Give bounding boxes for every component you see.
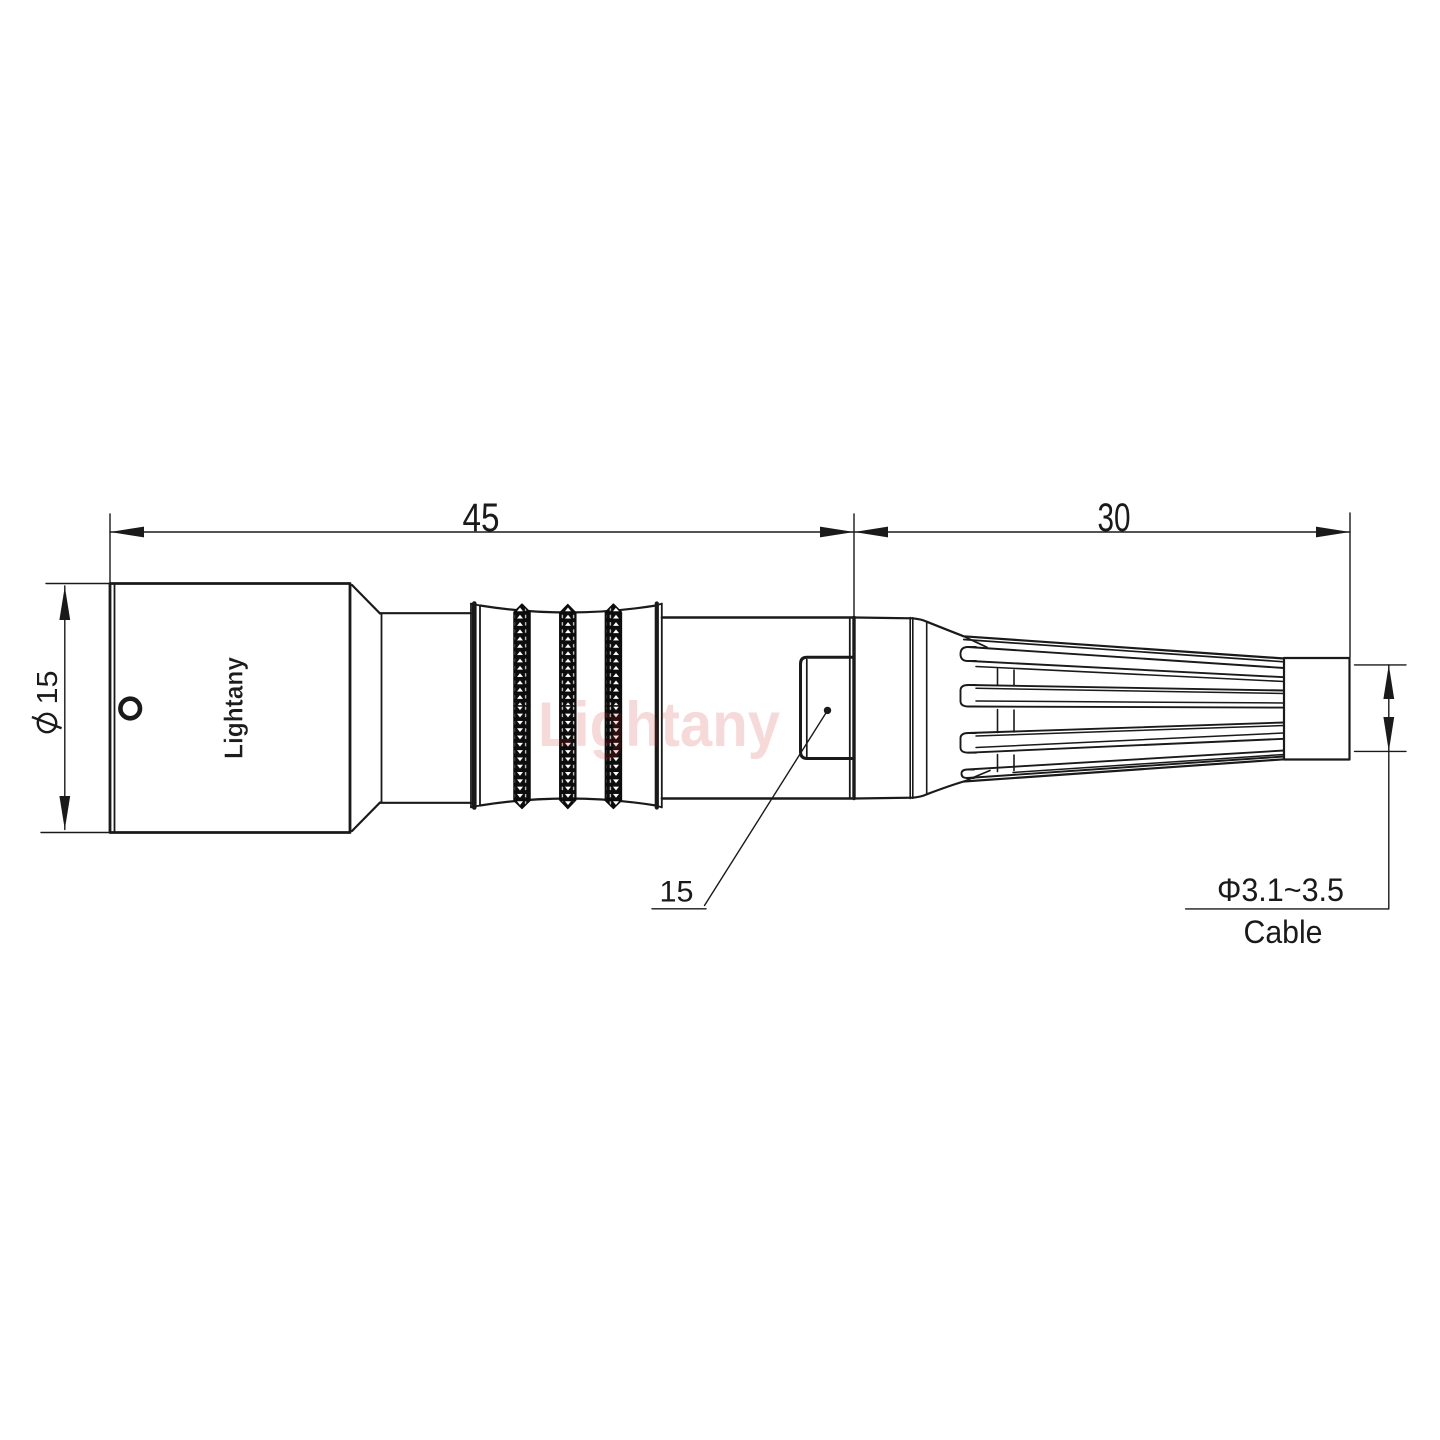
svg-text:Φ3.1~3.5: Φ3.1~3.5 [1217,872,1344,908]
svg-text:Cable: Cable [1244,914,1323,950]
svg-text:30: 30 [1098,496,1131,540]
svg-text:Lightany: Lightany [219,657,249,759]
svg-text:15: 15 [660,876,694,909]
svg-text:45: 45 [463,496,500,540]
svg-text:15: 15 [32,671,64,705]
svg-text:Lightany: Lightany [538,690,780,760]
